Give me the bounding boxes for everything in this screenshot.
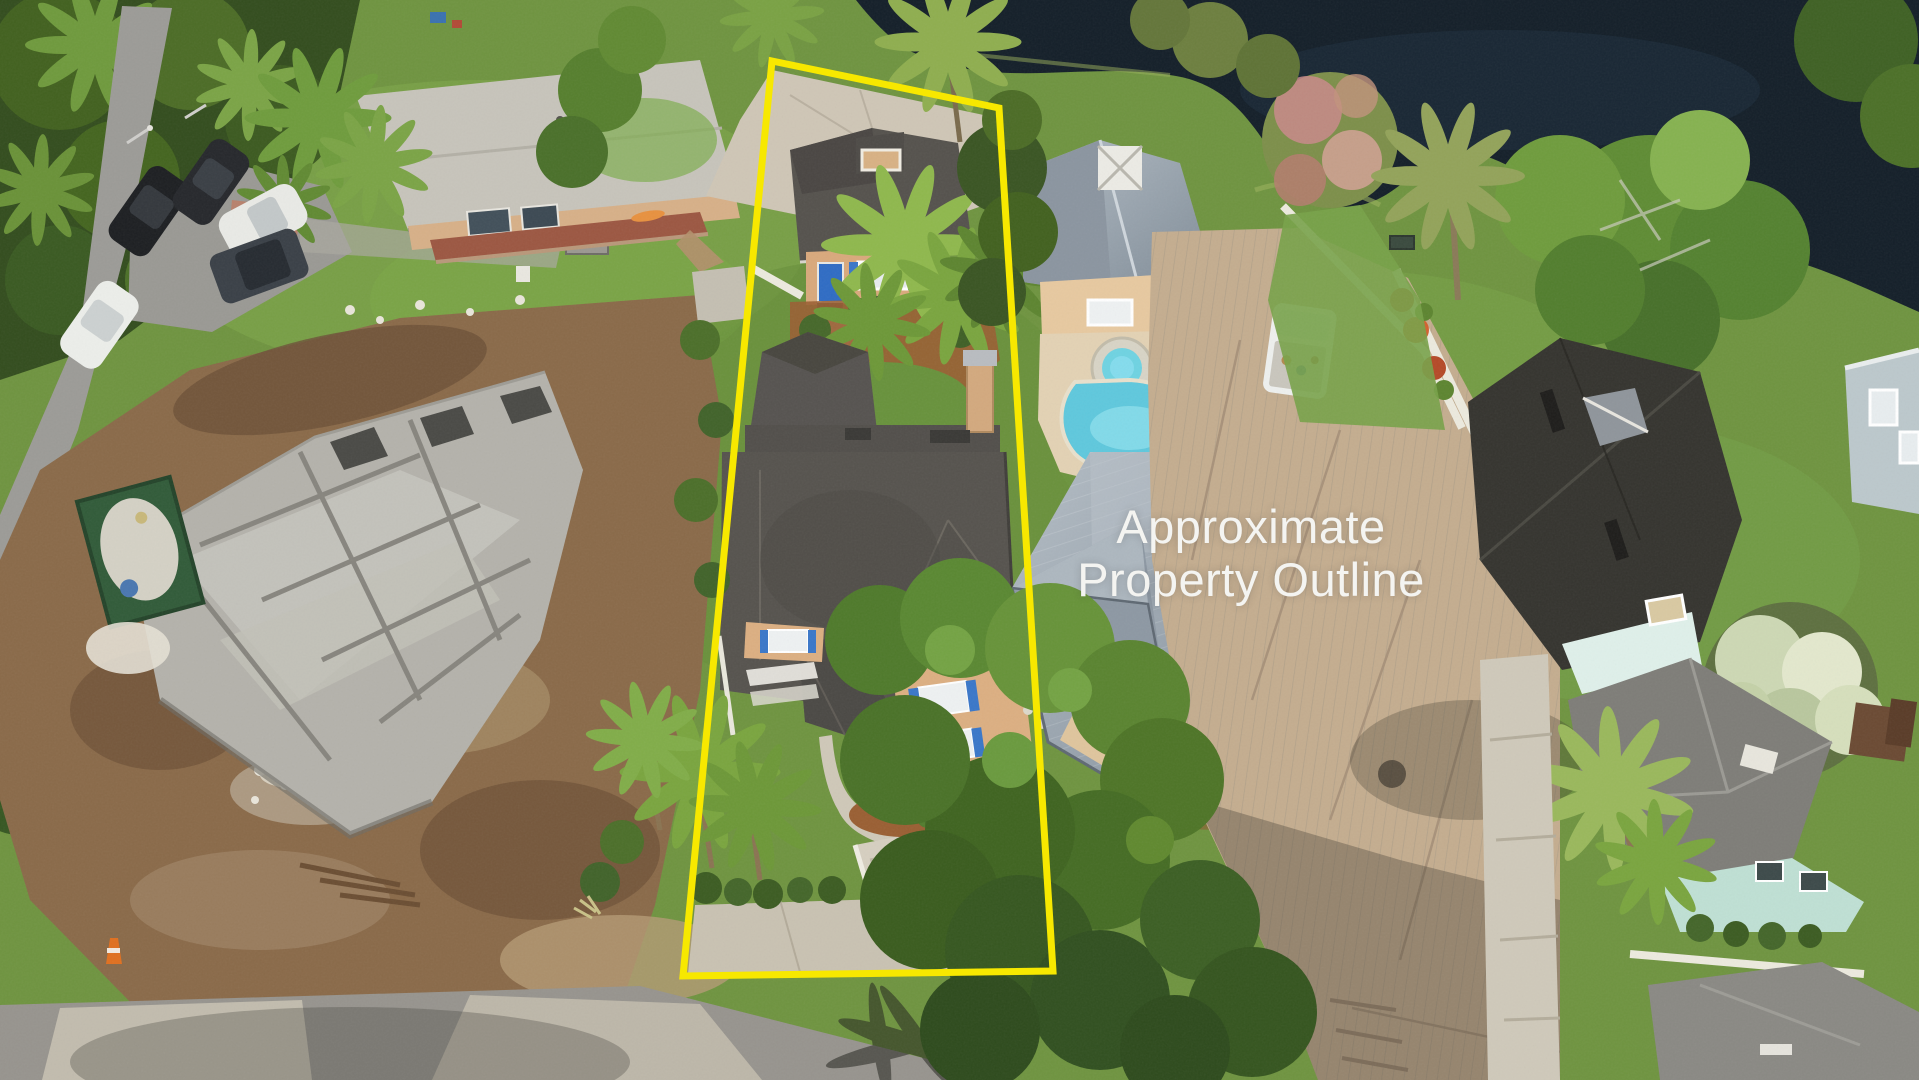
aerial-photo (0, 0, 1919, 1080)
photo-grain (0, 0, 1919, 1080)
aerial-photo-stage: Approximate Property Outline (0, 0, 1919, 1080)
